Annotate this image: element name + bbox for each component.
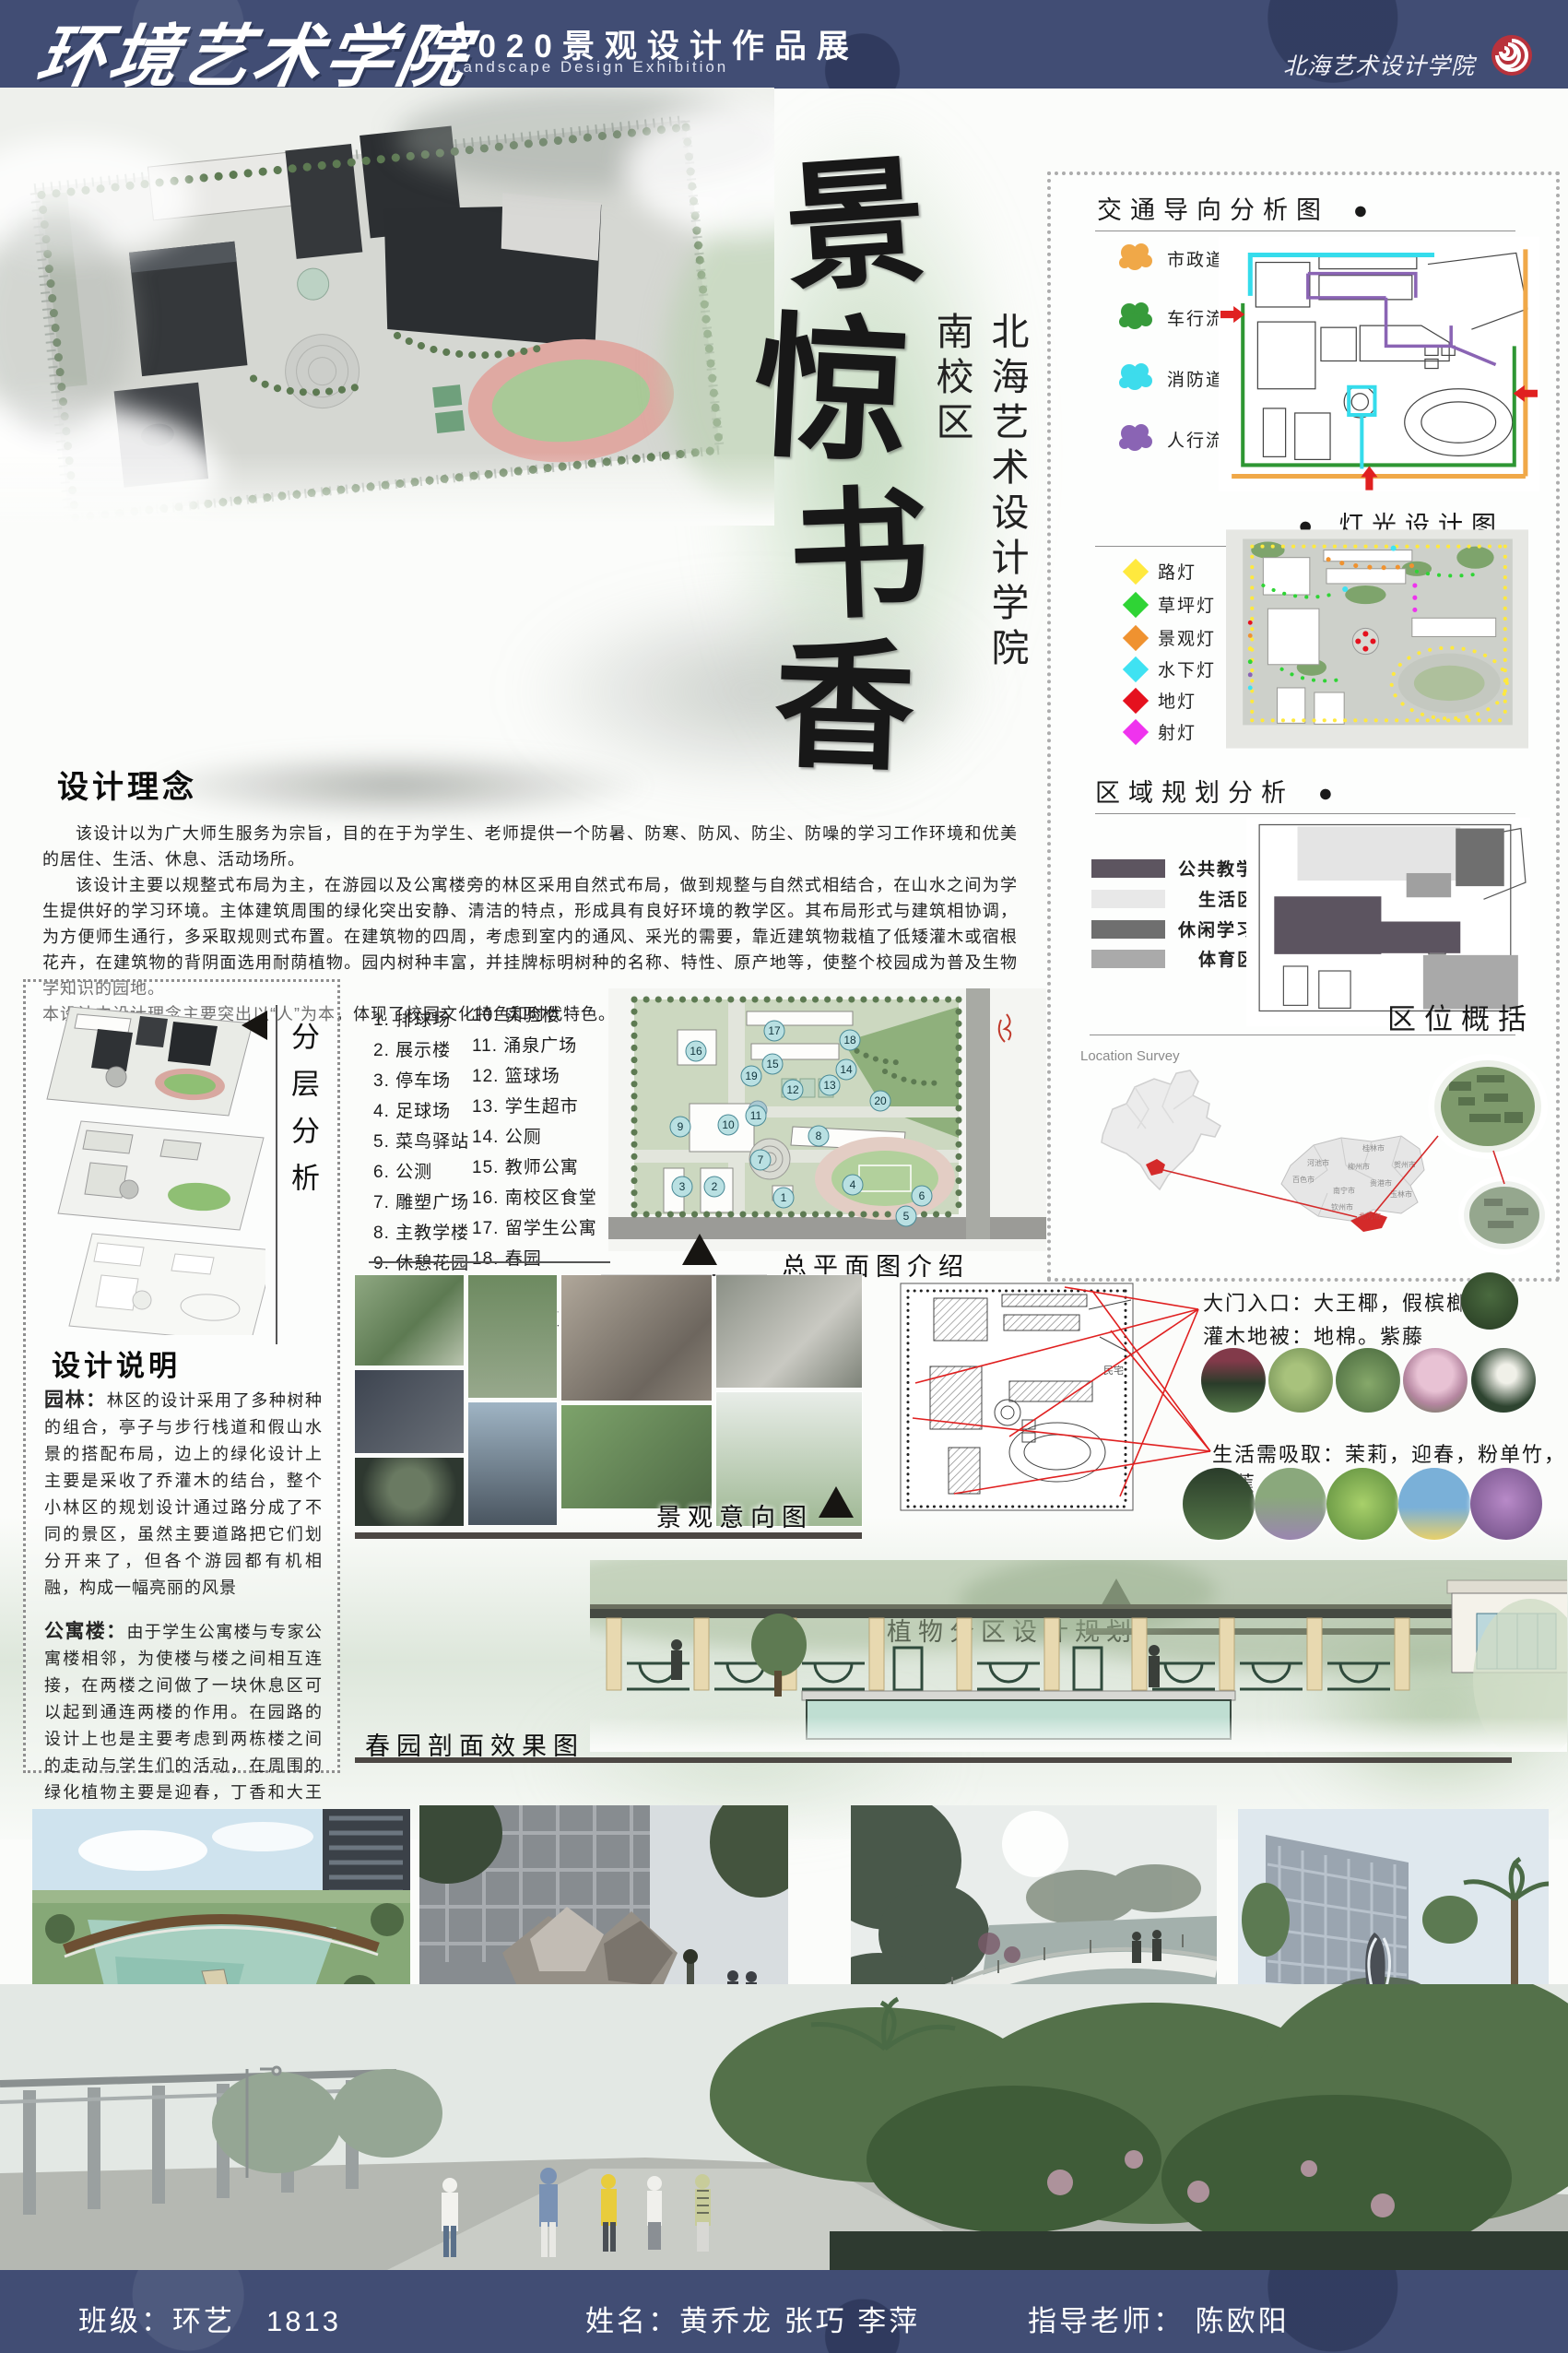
section-divider: [355, 1757, 1512, 1763]
svg-text:贵港市: 贵港市: [1370, 1178, 1392, 1188]
plant-photo: [1326, 1468, 1398, 1540]
landscape-lamp-icon: [1123, 624, 1149, 650]
ink-splat: [138, 749, 654, 822]
svg-text:17: 17: [768, 1024, 781, 1037]
design-notes-title: 设计说明: [52, 1342, 181, 1384]
school-title: 环境艺术学院: [30, 2, 479, 101]
plant-photo: [1471, 1348, 1536, 1413]
advisor-label: 指导老师： 陈欧阳: [1028, 2298, 1290, 2339]
hero-title-char-2: 惊: [750, 312, 914, 475]
location-section-title: 区位概括: [1387, 996, 1535, 1037]
svg-text:16: 16: [690, 1045, 702, 1058]
plant-photo: [1336, 1348, 1400, 1413]
plant-photo: [1461, 1272, 1518, 1330]
svg-text:2: 2: [712, 1180, 718, 1193]
svg-text:河池市: 河池市: [1307, 1158, 1329, 1167]
lighting-legend-item: 水下灯: [1126, 656, 1216, 681]
svg-text:6: 6: [919, 1189, 925, 1202]
location-rule: [1090, 1035, 1515, 1035]
plant-photo: [1183, 1468, 1255, 1540]
plant-photo: [1255, 1468, 1326, 1540]
class-label: 班级：环艺 1813: [78, 2298, 341, 2339]
header-bar: 环境艺术学院 2020景观设计作品展 Landscape Design Exhi…: [0, 0, 1568, 89]
sports-zone-swatch: [1091, 950, 1165, 968]
list-item: 10. 实验楼: [472, 1000, 597, 1031]
aerial-render-figure: [0, 88, 774, 526]
svg-text:钦州市: 钦州市: [1331, 1202, 1353, 1212]
list-item: 12. 篮球场: [472, 1061, 597, 1092]
intention-photo: [561, 1405, 712, 1508]
lighting-legend-item: 景观灯: [1126, 625, 1216, 650]
layer-analysis-title: 分层分析: [282, 1022, 324, 1326]
lighting-legend-item: 射灯: [1126, 719, 1197, 744]
list-rule: [369, 1261, 610, 1263]
design-concept-title: 设计理念: [57, 762, 197, 807]
list-item: 16. 南校区食堂: [472, 1183, 597, 1213]
section-bullet-icon: ●: [1353, 196, 1368, 224]
layer-axis-line: [276, 1005, 277, 1344]
location-survey-label: Location Survey: [1080, 1048, 1180, 1064]
garden-note: 园林：林区的设计采用了多种树种的组合，亭子与步行栈道和假山水景的搭配布局，边上的…: [44, 1387, 323, 1602]
intention-photo: [561, 1275, 712, 1401]
leisure-zone-swatch: [1091, 920, 1165, 939]
hero-title-char-1: 景: [781, 152, 930, 302]
layer-analysis-figure: [29, 992, 265, 1335]
svg-text:11: 11: [750, 1109, 762, 1122]
section-elevation-figure: [590, 1560, 1567, 1752]
north-arrow-icon: [819, 1486, 854, 1518]
zoning-rule: [1095, 813, 1515, 814]
plant-photo: [1398, 1468, 1470, 1540]
pedestrian-flow-blob-icon: [1117, 422, 1154, 455]
svg-text:10: 10: [722, 1118, 735, 1131]
lighting-legend-item: 草坪灯: [1126, 592, 1216, 617]
traffic-section-title: 交通导向分析图 ●: [1097, 190, 1368, 226]
spot-lamp-icon: [1123, 718, 1149, 744]
intention-photo: [355, 1458, 464, 1526]
intention-photo: [716, 1275, 862, 1388]
underwater-lamp-icon: [1123, 656, 1149, 681]
traffic-rule: [1095, 231, 1515, 231]
intention-photo: [355, 1370, 464, 1453]
college-logo-text: 北海艺术设计学院: [1283, 48, 1475, 81]
lighting-legend-item: 地灯: [1126, 688, 1197, 713]
svg-text:百色市: 百色市: [1292, 1175, 1315, 1184]
intention-photo: [355, 1275, 464, 1366]
exhibition-subtitle: Landscape Design Exhibition: [452, 58, 728, 77]
lighting-legend-item: 路灯: [1126, 559, 1197, 584]
svg-text:5: 5: [903, 1210, 910, 1223]
poster-root: 环境艺术学院 2020景观设计作品展 Landscape Design Exhi…: [0, 0, 1568, 2353]
zoning-legend-item: 体育区: [1091, 946, 1256, 971]
master-plan-figure: 1 2 3 4 5 6 7 8 9 10 11 12 13 14 15 16 1…: [608, 988, 1046, 1251]
plant-photo: [1403, 1348, 1468, 1413]
svg-text:12: 12: [786, 1083, 799, 1096]
concept-paragraph: 该设计以为广大师生服务为宗旨，目的在于为学生、老师提供一个防暑、防寒、防风、防尘…: [42, 821, 1018, 872]
municipal-road-blob-icon: [1117, 242, 1154, 275]
apartment-label: 公寓楼：: [44, 1621, 126, 1642]
intention-divider: [355, 1532, 862, 1539]
list-item: 14. 公厕: [472, 1122, 597, 1153]
list-item: 17. 留学生公寓: [472, 1213, 597, 1244]
svg-text:柳州市: 柳州市: [1348, 1162, 1370, 1171]
pointer-icon: [242, 1011, 267, 1040]
svg-text:7: 7: [758, 1153, 764, 1166]
svg-text:桂林市: 桂林市: [1362, 1143, 1385, 1153]
fire-road-blob-icon: [1117, 361, 1154, 395]
intention-caption: 景观意向图: [656, 1497, 813, 1533]
svg-text:20: 20: [874, 1094, 887, 1107]
zoning-section-title: 区域规划分析 ●: [1095, 773, 1333, 809]
north-arrow-icon: [682, 1234, 717, 1265]
lawn-lamp-icon: [1123, 591, 1149, 617]
ground-lamp-icon: [1123, 687, 1149, 713]
svg-text:18: 18: [843, 1034, 856, 1046]
hero-title-char-3: 书: [786, 484, 931, 629]
svg-text:15: 15: [766, 1058, 779, 1070]
location-survey-figure: Location Survey 河池市 桂林市 柳州市 贺州市 百色市 贵港市 …: [1071, 1040, 1558, 1261]
plant-shrub-line: 灌木地被：地棉。紫藤: [1203, 1320, 1424, 1350]
svg-text:8: 8: [816, 1129, 822, 1142]
plant-plan-figure: 民宅: [899, 1282, 1143, 1517]
svg-text:3: 3: [679, 1180, 686, 1193]
apartment-note: 公寓楼：由于学生公寓楼与专家公寓楼相邻，为使楼与楼之间相互连接，在两楼之间做了一…: [44, 1618, 323, 1833]
footer-bar: 班级：环艺 1813 姓名：黄乔龙 张巧 李萍 指导老师： 陈欧阳: [0, 2270, 1568, 2353]
list-item: 3. 停车场: [373, 1066, 469, 1096]
hero-title-char-4: 香: [772, 635, 916, 780]
list-item: 8. 主教学楼: [373, 1218, 469, 1248]
list-item: 13. 学生超市: [472, 1092, 597, 1122]
facility-list-col1: 1. 排球场 2. 展示楼 3. 停车场 4. 足球场 5. 菜鸟驿站 6. 公…: [373, 1005, 469, 1279]
svg-text:13: 13: [823, 1079, 836, 1092]
road-lamp-icon: [1123, 558, 1149, 584]
plant-photo: [1268, 1348, 1333, 1413]
list-item: 18. 春园: [472, 1244, 597, 1274]
list-item: 4. 足球场: [373, 1096, 469, 1127]
list-item: 11. 涌泉广场: [472, 1031, 597, 1061]
svg-text:19: 19: [745, 1070, 758, 1082]
plant-photo: [1470, 1468, 1542, 1540]
svg-text:4: 4: [850, 1178, 856, 1191]
section-bullet-icon: ●: [1318, 779, 1333, 807]
list-item: 6. 公测: [373, 1157, 469, 1188]
traffic-plan-figure: [1219, 236, 1539, 492]
list-item: 15. 教师公寓: [472, 1153, 597, 1183]
intention-photo: [468, 1275, 557, 1398]
list-item: 7. 雕塑广场: [373, 1188, 469, 1218]
svg-text:南宁市: 南宁市: [1333, 1186, 1355, 1195]
list-item: 1. 排球场: [373, 1005, 469, 1035]
names-label: 姓名：黄乔龙 张巧 李萍: [585, 2298, 920, 2339]
teaching-zone-swatch: [1091, 859, 1165, 878]
list-item: 5. 菜鸟驿站: [373, 1127, 469, 1157]
living-zone-swatch: [1091, 890, 1165, 908]
street-render-figure: [0, 1984, 1568, 2270]
design-notes-text: 园林：林区的设计采用了多种树种的组合，亭子与步行栈道和假山水景的搭配布局，边上的…: [44, 1387, 323, 1850]
list-item: 2. 展示楼: [373, 1035, 469, 1066]
garden-label: 园林：: [44, 1389, 107, 1411]
plant-photo: [1201, 1348, 1266, 1413]
svg-text:14: 14: [840, 1063, 853, 1076]
lighting-plan-figure: [1226, 529, 1528, 749]
campus-subtitle: 北海艺术设计学院南校区: [924, 312, 1034, 708]
vehicle-flow-blob-icon: [1117, 301, 1154, 334]
intention-photo: [468, 1402, 557, 1525]
plan-note-label: 民宅: [1103, 1364, 1124, 1377]
svg-text:9: 9: [678, 1120, 684, 1133]
zoning-legend-item: 生活区: [1091, 886, 1256, 911]
svg-text:1: 1: [781, 1191, 787, 1204]
spiral-seal-icon: [1488, 31, 1536, 79]
